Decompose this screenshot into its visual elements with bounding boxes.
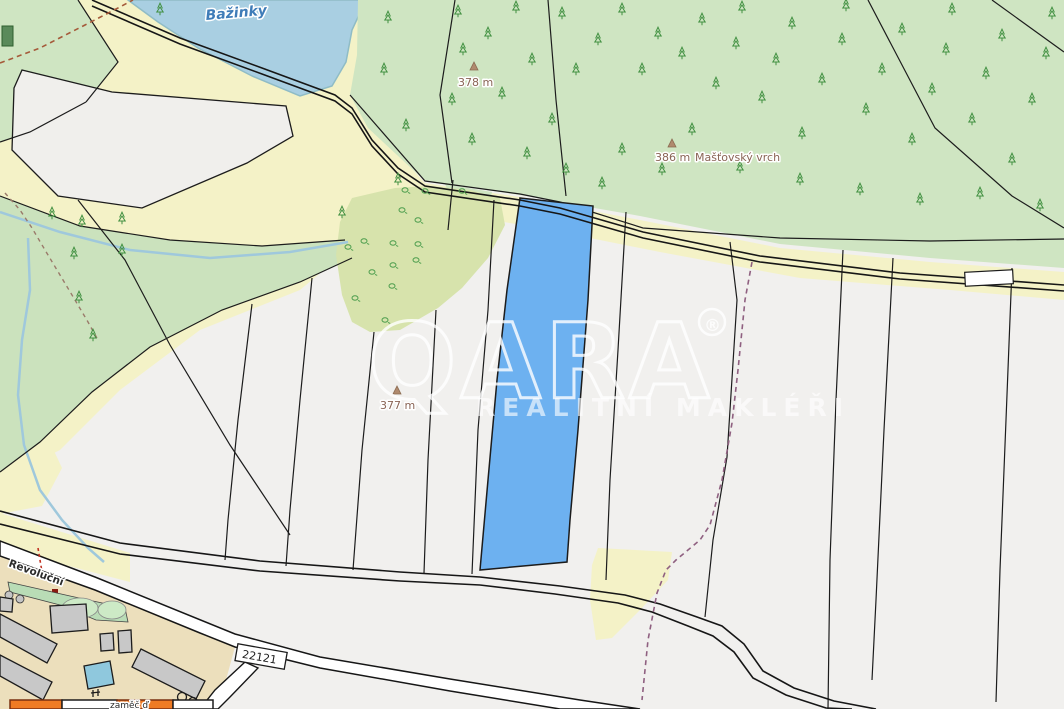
clipped-bottom-label: zaměč ď [110,700,149,709]
peak-label-378: 378 m [458,76,493,89]
registered-mark: ® [704,316,721,336]
roadside-structure [965,270,1014,286]
watermark-tagline: REALITNÍ MAKLÉŘI [476,393,850,422]
peak-label-386: 386 m [655,151,690,164]
peak-name-mastovsky-vrch: Mašťovský vrch [695,151,780,164]
cadastral-map-canvas[interactable]: 378 m 386 m Mašťovský vrch 377 m Bažinky… [0,0,1064,709]
map-viewport[interactable]: 378 m 386 m Mašťovský vrch 377 m Bažinky… [0,0,1064,709]
